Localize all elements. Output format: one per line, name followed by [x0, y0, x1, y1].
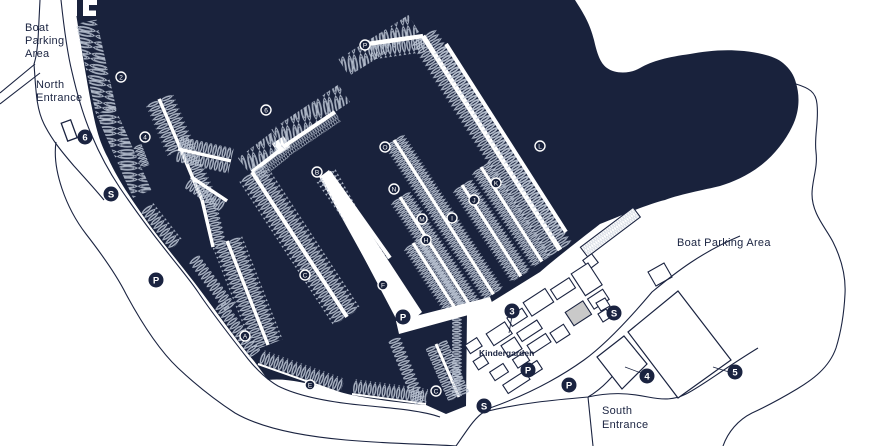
svg-text:P: P — [525, 365, 532, 376]
svg-text:4: 4 — [644, 371, 650, 382]
svg-text:J: J — [472, 197, 475, 204]
svg-text:I: I — [451, 215, 453, 222]
svg-text:Entrance: Entrance — [36, 92, 82, 104]
svg-text:5: 5 — [732, 367, 738, 378]
svg-text:C: C — [303, 272, 308, 279]
svg-text:3: 3 — [509, 306, 514, 317]
svg-text:Kindergarden: Kindergarden — [479, 348, 534, 358]
svg-text:O: O — [382, 144, 387, 151]
svg-text:6: 6 — [264, 107, 268, 114]
svg-text:Boat Parking Area: Boat Parking Area — [677, 237, 771, 249]
svg-text:Area: Area — [25, 48, 50, 60]
svg-text:M: M — [419, 216, 424, 223]
svg-text:B: B — [315, 169, 319, 176]
svg-text:E: E — [308, 382, 313, 389]
svg-text:North: North — [36, 79, 64, 91]
svg-text:N: N — [392, 186, 397, 193]
svg-text:K: K — [494, 180, 499, 187]
svg-text:4: 4 — [143, 134, 147, 141]
svg-text:P: P — [566, 380, 573, 391]
svg-text:P: P — [153, 275, 160, 286]
svg-text:C: C — [434, 388, 439, 395]
svg-text:S: S — [481, 401, 487, 412]
svg-text:A: A — [243, 333, 248, 340]
svg-text:South: South — [602, 405, 632, 417]
svg-text:H: H — [424, 237, 429, 244]
svg-text:Boat: Boat — [25, 22, 49, 34]
svg-text:P: P — [363, 42, 367, 49]
svg-text:P: P — [400, 312, 407, 323]
svg-text:2: 2 — [119, 74, 123, 81]
svg-text:6: 6 — [82, 132, 87, 143]
svg-text:Parking: Parking — [25, 35, 64, 47]
svg-text:F: F — [381, 282, 385, 289]
svg-text:L: L — [538, 143, 542, 150]
svg-text:S: S — [108, 189, 114, 200]
svg-text:S: S — [611, 308, 617, 319]
svg-text:Entrance: Entrance — [602, 419, 648, 431]
